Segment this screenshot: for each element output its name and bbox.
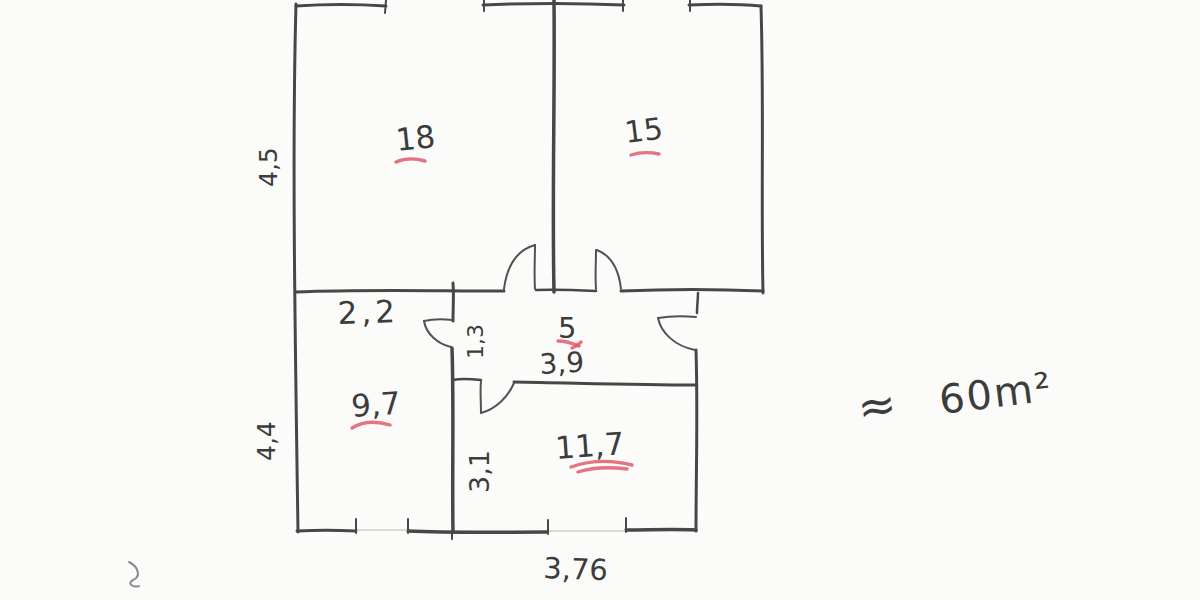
label-bottom-room-width: 3,76 <box>543 551 609 587</box>
mid-wall-segment-3 <box>621 290 763 292</box>
label-corridor-width: 1,3 <box>463 324 488 359</box>
bottom-wall-segment-1 <box>297 530 356 531</box>
scanned-paper-sheet: 18 15 2,2 5 3,9 1,3 3,1 9,7 11,7 3,76 4,… <box>0 0 1200 600</box>
floor-plan-sketch: 18 15 2,2 5 3,9 1,3 3,1 9,7 11,7 3,76 4,… <box>0 0 1200 600</box>
corridor-wall-below-door <box>452 348 453 532</box>
stray-pencil-mark <box>129 562 139 586</box>
label-room-area-top-right: 15 <box>623 111 665 150</box>
label-hallway-area: 5 <box>558 311 576 345</box>
label-lower-right-room-height: 3,1 <box>464 450 495 493</box>
mid-wall-segment-2 <box>536 290 596 291</box>
left-wall <box>294 4 298 532</box>
total-area-value: 60m² <box>936 363 1055 423</box>
red-underline-room-15 <box>631 153 659 155</box>
label-room-area-bottom-right: 11,7 <box>554 425 625 466</box>
door-arc-room-top-left <box>504 245 535 289</box>
right-wall-upper <box>761 6 763 293</box>
right-wall-lower-below-door <box>696 350 697 531</box>
label-hallway-width: 3,9 <box>539 346 585 381</box>
label-room-area-top-left: 18 <box>394 118 437 158</box>
top-wall-segment-3 <box>689 4 761 6</box>
top-wall-segment-1 <box>296 5 386 7</box>
mid-wall-segment-1 <box>296 290 504 292</box>
top-window-tick-1 <box>385 0 386 13</box>
door-leaf-entrance <box>658 316 696 318</box>
outer-walls <box>294 0 763 534</box>
door-arc-entrance <box>658 318 695 350</box>
label-left-room-width: 2,2 <box>337 293 400 331</box>
door-arc-room-top-right <box>597 250 621 289</box>
red-underline-room-11-7-lower <box>578 468 627 472</box>
red-underline-room-18 <box>396 159 425 162</box>
labels: 18 15 2,2 5 3,9 1,3 3,1 9,7 11,7 3,76 4,… <box>252 111 665 588</box>
total-area-note: ≈ 60m² <box>854 363 1055 434</box>
door-arc-room-bottom-right <box>481 383 514 413</box>
hallway-wall-left-of-door <box>453 379 481 380</box>
door-arc-corridor <box>424 321 451 347</box>
label-upper-left-height: 4,5 <box>254 147 283 187</box>
bottom-wall-segment-2 <box>408 531 547 532</box>
approx-symbol: ≈ <box>854 376 900 435</box>
hallway-wall-right-of-door <box>514 382 696 385</box>
label-lower-left-height: 4,4 <box>252 421 281 461</box>
right-wall-lower-above-door <box>697 293 698 313</box>
label-room-area-bottom-left: 9,7 <box>350 385 402 424</box>
interior-walls <box>296 0 763 539</box>
door-leaf-corridor <box>424 319 452 321</box>
center-divider-wall <box>553 0 554 292</box>
